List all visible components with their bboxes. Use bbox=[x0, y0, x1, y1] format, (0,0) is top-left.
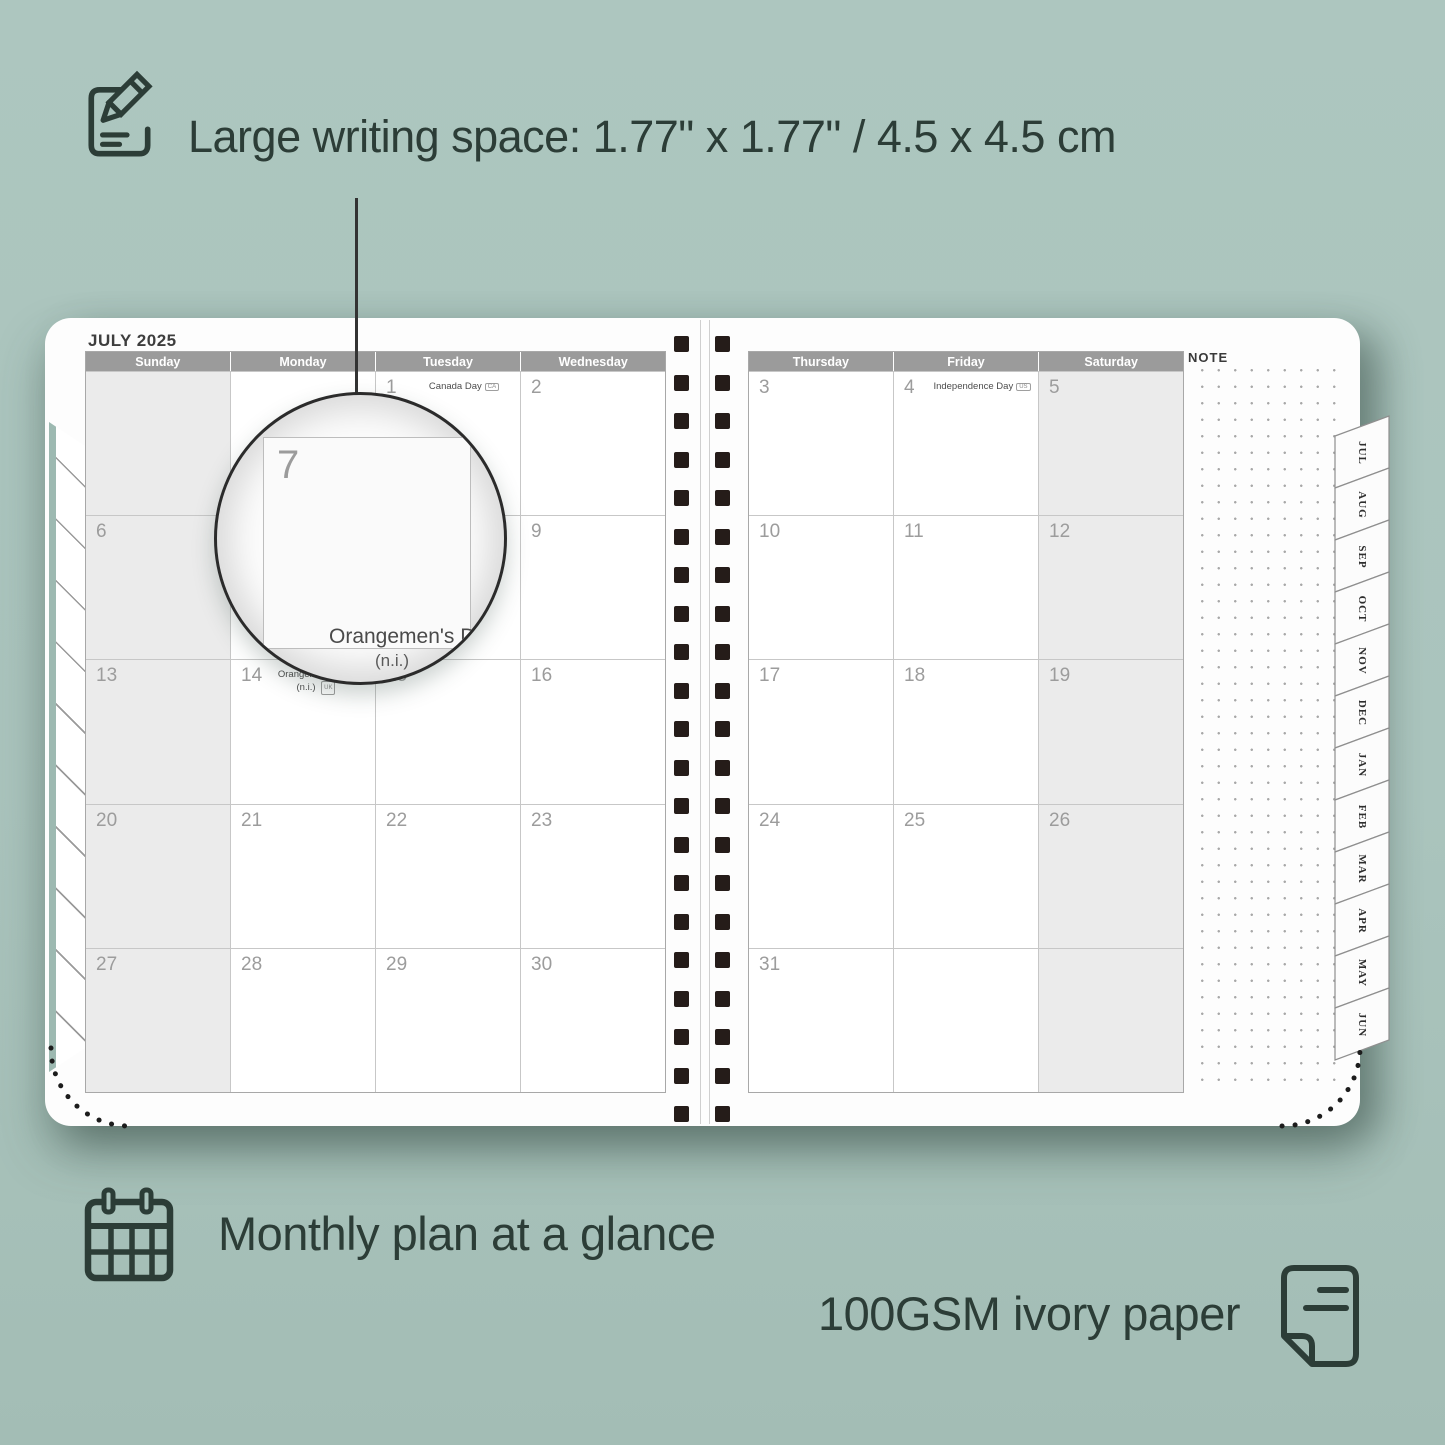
country-badge: UK bbox=[321, 681, 335, 695]
month-tab-label: FEB bbox=[1356, 805, 1368, 829]
date-number: 12 bbox=[1049, 521, 1070, 543]
calendar-cell: 25 bbox=[894, 804, 1039, 948]
planner-spread: JULY 2025 SundayMondayTuesdayWednesday1C… bbox=[45, 318, 1360, 1126]
binding-hole bbox=[674, 875, 689, 891]
weekday-header: Monday bbox=[231, 352, 375, 371]
date-number: 28 bbox=[241, 954, 262, 976]
month-tab-label: AUG bbox=[1356, 491, 1368, 518]
binding-hole bbox=[674, 606, 689, 622]
page-gutter-edge bbox=[709, 320, 710, 1124]
binding-hole bbox=[715, 567, 730, 583]
binding-hole bbox=[715, 490, 730, 506]
note-dot-grid bbox=[1190, 356, 1348, 1084]
month-tab-label: OCT bbox=[1356, 596, 1368, 623]
calendar-cell: 21 bbox=[231, 804, 376, 948]
date-number: 17 bbox=[759, 665, 780, 687]
magnified-day-number: 7 bbox=[277, 443, 299, 488]
date-number: 4 bbox=[904, 377, 915, 399]
binding-hole bbox=[674, 567, 689, 583]
date-number: 24 bbox=[759, 810, 780, 832]
calendar-cell: 20 bbox=[86, 804, 231, 948]
binding-hole bbox=[715, 721, 730, 737]
binding-hole bbox=[715, 644, 730, 660]
calendar-grid-icon bbox=[80, 1186, 180, 1286]
weekday-header: Sunday bbox=[86, 352, 230, 371]
calendar-cell: 26 bbox=[1039, 804, 1183, 948]
binding-hole bbox=[674, 991, 689, 1007]
binding-hole bbox=[674, 413, 689, 429]
magnifier-circle: 7 Orangemen's Day (n.i.) bbox=[214, 392, 507, 685]
binding-hole bbox=[715, 991, 730, 1007]
calendar-cell bbox=[894, 948, 1039, 1092]
month-tab-label: APR bbox=[1356, 908, 1368, 934]
binding-hole bbox=[715, 606, 730, 622]
month-tab-label: SEP bbox=[1356, 545, 1368, 568]
month-tab-label: MAR bbox=[1356, 854, 1368, 883]
product-image: { "colors": { "background": "#aac4bd", "… bbox=[0, 0, 1445, 1445]
date-number: 13 bbox=[96, 665, 117, 687]
weekday-header: Friday bbox=[894, 352, 1038, 371]
binding-hole bbox=[674, 490, 689, 506]
binding-hole bbox=[674, 1068, 689, 1084]
weekday-header: Tuesday bbox=[376, 352, 520, 371]
month-tab-label: JAN bbox=[1356, 753, 1368, 777]
calendar-cell: 3 bbox=[749, 371, 894, 515]
calendar-cell: 15 bbox=[376, 659, 521, 803]
calendar-cell: 23 bbox=[521, 804, 665, 948]
date-number: 21 bbox=[241, 810, 262, 832]
holiday-label: Independence DayUS bbox=[930, 381, 1034, 392]
binding-hole bbox=[715, 1029, 730, 1045]
date-number: 20 bbox=[96, 810, 117, 832]
country-badge: CA bbox=[485, 383, 499, 391]
date-number: 10 bbox=[759, 521, 780, 543]
page-gutter-edge bbox=[700, 320, 701, 1124]
calendar-cell: 18 bbox=[894, 659, 1039, 803]
calendar-cell: 30 bbox=[521, 948, 665, 1092]
calendar-cell: 28 bbox=[231, 948, 376, 1092]
binding-hole bbox=[674, 721, 689, 737]
binding-hole bbox=[674, 952, 689, 968]
month-tab-label: NOV bbox=[1356, 647, 1368, 674]
date-number: 9 bbox=[531, 521, 542, 543]
feature-paper-label: 100GSM ivory paper bbox=[0, 1286, 1240, 1341]
binding-hole bbox=[715, 375, 730, 391]
calendar-cell: 22 bbox=[376, 804, 521, 948]
binding-hole bbox=[674, 452, 689, 468]
weekday-header: Saturday bbox=[1039, 352, 1183, 371]
binding-hole bbox=[715, 798, 730, 814]
date-number: 18 bbox=[904, 665, 925, 687]
weekday-header: Thursday bbox=[749, 352, 893, 371]
binding-hole bbox=[674, 529, 689, 545]
calendar-cell: 13 bbox=[86, 659, 231, 803]
date-number: 16 bbox=[531, 665, 552, 687]
calendar-cell: 11 bbox=[894, 515, 1039, 659]
binding-hole bbox=[674, 336, 689, 352]
binding-hole bbox=[715, 1106, 730, 1122]
month-tab-label: JUL bbox=[1356, 441, 1368, 465]
calendar-cell: 5 bbox=[1039, 371, 1183, 515]
calendar-cell: 16 bbox=[521, 659, 665, 803]
binding-hole bbox=[674, 1106, 689, 1122]
month-tab-label: MAY bbox=[1356, 959, 1368, 987]
calendar-cell: 31 bbox=[749, 948, 894, 1092]
paper-sheet-icon bbox=[1268, 1262, 1368, 1370]
calendar-grid-right: ThursdayFridaySaturday34Independence Day… bbox=[748, 351, 1184, 1093]
binding-hole bbox=[715, 452, 730, 468]
date-number: 25 bbox=[904, 810, 925, 832]
country-badge: US bbox=[1016, 383, 1030, 391]
date-number: 27 bbox=[96, 954, 117, 976]
date-number: 29 bbox=[386, 954, 407, 976]
calendar-cell bbox=[86, 371, 231, 515]
calendar-cell: 17 bbox=[749, 659, 894, 803]
headline-writing-space: Large writing space: 1.77" x 1.77" / 4.5… bbox=[188, 102, 1338, 172]
feature-monthly-label: Monthly plan at a glance bbox=[218, 1206, 716, 1261]
calendar-cell: 29 bbox=[376, 948, 521, 1092]
date-number: 19 bbox=[1049, 665, 1070, 687]
date-number: 3 bbox=[759, 377, 770, 399]
binding-hole bbox=[674, 837, 689, 853]
calendar-cell: 24 bbox=[749, 804, 894, 948]
corner-perforation-right bbox=[1270, 1018, 1390, 1138]
month-tab-label: DEC bbox=[1356, 700, 1368, 726]
binding-hole bbox=[674, 644, 689, 660]
calendar-cell: 10 bbox=[749, 515, 894, 659]
binding-hole bbox=[674, 760, 689, 776]
note-label: NOTE bbox=[1188, 348, 1234, 367]
magnified-holiday-text-2: (n.i.) bbox=[375, 651, 409, 671]
date-number: 2 bbox=[531, 377, 542, 399]
calendar-cell: 19 bbox=[1039, 659, 1183, 803]
calendar-cell: 12 bbox=[1039, 515, 1183, 659]
date-number: 5 bbox=[1049, 377, 1060, 399]
binding-hole bbox=[715, 760, 730, 776]
binding-hole bbox=[715, 683, 730, 699]
callout-line bbox=[355, 198, 358, 408]
month-title: JULY 2025 bbox=[88, 331, 177, 351]
date-number: 6 bbox=[96, 521, 107, 543]
binding-hole bbox=[674, 1029, 689, 1045]
date-number: 31 bbox=[759, 954, 780, 976]
binding-hole bbox=[674, 683, 689, 699]
binding-hole bbox=[715, 837, 730, 853]
corner-perforation-left bbox=[45, 1018, 165, 1138]
calendar-cell: 2 bbox=[521, 371, 665, 515]
binding-hole bbox=[674, 798, 689, 814]
date-number: 22 bbox=[386, 810, 407, 832]
binding-hole bbox=[674, 914, 689, 930]
month-tabs: JULAUGSEPOCTNOVDECJANFEBMARAPRMAYJUN bbox=[1335, 416, 1395, 1076]
calendar-cell: 4Independence DayUS bbox=[894, 371, 1039, 515]
calendar-cell: 9 bbox=[521, 515, 665, 659]
date-number: 11 bbox=[904, 521, 924, 543]
date-number: 23 bbox=[531, 810, 552, 832]
date-number: 30 bbox=[531, 954, 552, 976]
binding-hole bbox=[715, 336, 730, 352]
binding-hole bbox=[715, 529, 730, 545]
binding-hole bbox=[674, 375, 689, 391]
date-number: 14 bbox=[241, 665, 262, 687]
binding-hole bbox=[715, 413, 730, 429]
binding-hole bbox=[715, 875, 730, 891]
weekday-header: Wednesday bbox=[521, 352, 665, 371]
binding-hole bbox=[715, 1068, 730, 1084]
calendar-cell bbox=[1039, 948, 1183, 1092]
date-number: 26 bbox=[1049, 810, 1070, 832]
calendar-cell: 6 bbox=[86, 515, 231, 659]
holiday-label: Canada DayCA bbox=[412, 381, 516, 392]
binding-hole bbox=[715, 952, 730, 968]
binding-hole bbox=[715, 914, 730, 930]
note-pencil-icon bbox=[80, 70, 174, 166]
magnified-holiday-text: Orangemen's Day bbox=[329, 625, 498, 649]
